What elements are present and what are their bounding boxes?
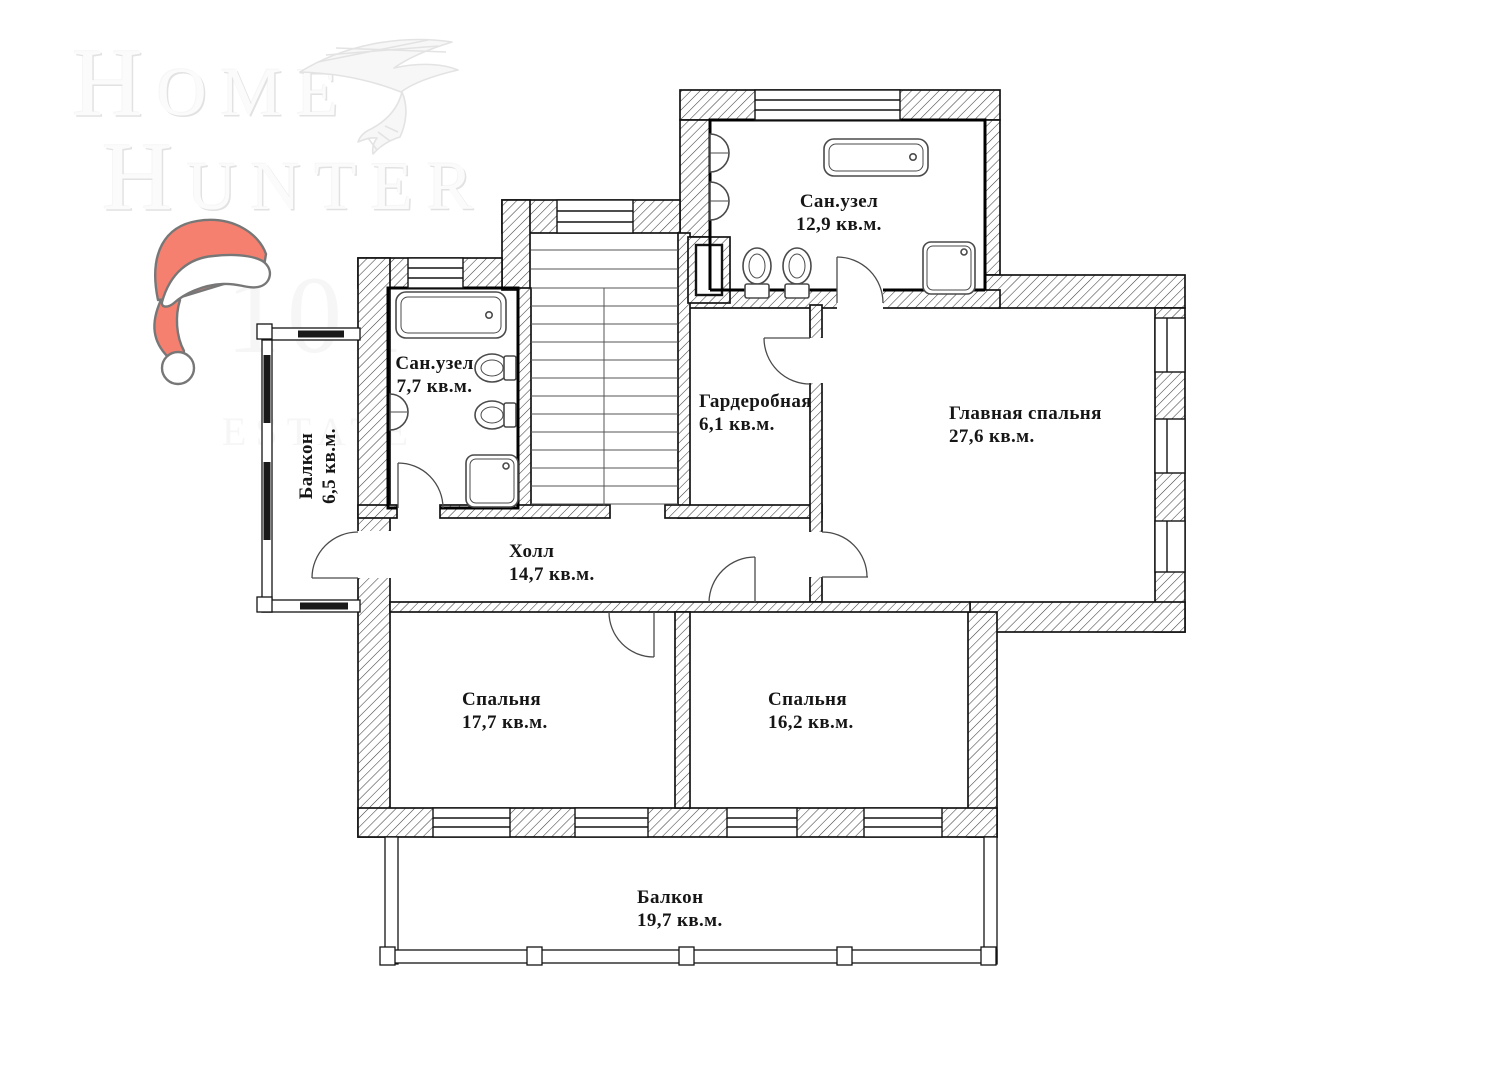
window	[433, 808, 510, 837]
room-label-balcony-bottom: Балкон 19,7 кв.м.	[637, 886, 723, 932]
staircase	[531, 250, 678, 506]
sink	[710, 182, 729, 220]
shower-cabin	[466, 455, 518, 507]
window	[575, 808, 648, 837]
room-name: Холл	[509, 540, 595, 563]
window	[408, 258, 463, 288]
toilet	[783, 248, 811, 298]
room-area: 6,5 кв.м.	[318, 391, 341, 541]
room-name: Гардеробная	[699, 390, 812, 413]
window	[864, 808, 942, 837]
room-label-bedroom-right: Спальня 16,2 кв.м.	[768, 688, 854, 734]
room-label-master-bedroom: Главная спальня 27,6 кв.м.	[949, 402, 1102, 448]
room-area: 19,7 кв.м.	[637, 909, 723, 932]
bathtub	[824, 139, 928, 176]
room-name: Сан.узел	[779, 190, 899, 213]
window	[557, 200, 633, 233]
room-name: Балкон	[637, 886, 723, 909]
room-label-hall: Холл 14,7 кв.м.	[509, 540, 595, 586]
room-name: Сан.узел	[377, 352, 492, 375]
eagle-watermark-icon	[300, 40, 458, 154]
floorplan-canvas: Home Hunter 101 ESTATE	[0, 0, 1511, 1080]
floorplan-svg	[0, 0, 1511, 1080]
room-area: 16,2 кв.м.	[768, 711, 854, 734]
bathtub	[396, 292, 506, 338]
shower-cabin	[923, 242, 975, 294]
room-area: 6,1 кв.м.	[699, 413, 812, 436]
sink	[390, 394, 408, 430]
room-label-bathroom-left: Сан.узел 7,7 кв.м.	[377, 352, 492, 398]
door-bathroom-left	[398, 463, 443, 508]
room-area: 17,7 кв.м.	[462, 711, 548, 734]
sink	[710, 134, 729, 172]
room-name: Балкон	[295, 391, 318, 541]
santa-hat-icon	[154, 220, 270, 384]
room-label-wardrobe: Гардеробная 6,1 кв.м.	[699, 390, 812, 436]
toilet	[475, 401, 516, 429]
window	[1155, 521, 1185, 572]
door-bedroom-left	[609, 612, 654, 657]
window	[1155, 419, 1185, 473]
room-area: 14,7 кв.м.	[509, 563, 595, 586]
room-label-balcony-left: Балкон 6,5 кв.м.	[295, 391, 341, 541]
room-label-bathroom-top: Сан.узел 12,9 кв.м.	[779, 190, 899, 236]
room-label-bedroom-left: Спальня 17,7 кв.м.	[462, 688, 548, 734]
door-master-bedroom	[822, 532, 868, 577]
door-wardrobe	[764, 338, 810, 384]
room-name: Спальня	[462, 688, 548, 711]
room-area: 27,6 кв.м.	[949, 425, 1102, 448]
window	[727, 808, 797, 837]
room-area: 7,7 кв.м.	[377, 375, 492, 398]
door-bedroom-right	[709, 557, 755, 602]
window	[755, 90, 900, 120]
room-area: 12,9 кв.м.	[779, 213, 899, 236]
window	[1155, 318, 1185, 372]
toilet	[743, 248, 771, 298]
room-name: Спальня	[768, 688, 854, 711]
room-name: Главная спальня	[949, 402, 1102, 425]
